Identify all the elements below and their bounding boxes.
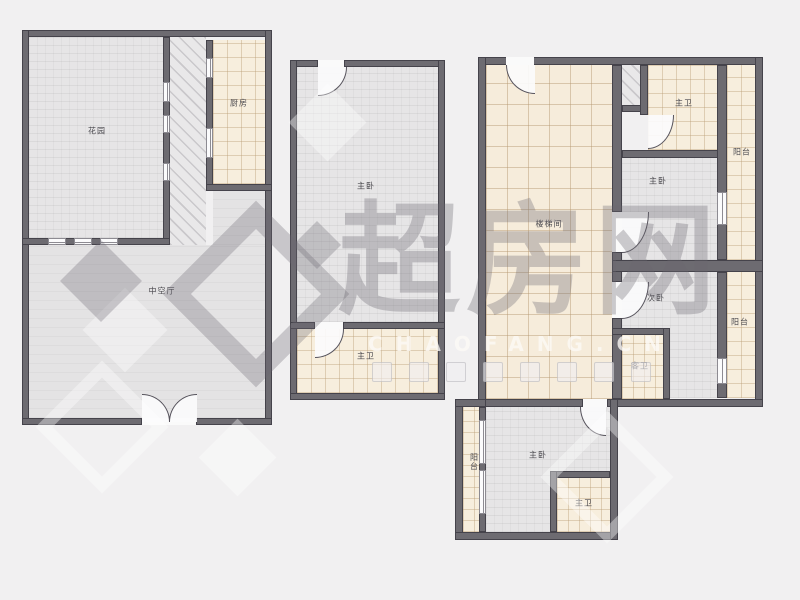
window: [717, 192, 727, 225]
wall: [478, 57, 486, 407]
wall: [622, 150, 727, 158]
room-label-balcony-mid: 阳台: [731, 317, 749, 328]
door-opening: [315, 322, 343, 329]
stairs-strip: [622, 65, 640, 107]
window: [717, 358, 727, 384]
window: [479, 470, 486, 514]
room-garden: [29, 37, 163, 238]
room-stairwell: [486, 65, 612, 399]
wall: [344, 60, 445, 67]
door-opening: [612, 282, 622, 318]
watermark-diamond-icon: [199, 419, 277, 497]
room-label-master-bedroom-mid: 主卧: [649, 176, 667, 187]
wall: [640, 65, 648, 115]
room-hall: [29, 245, 265, 418]
wall: [550, 471, 557, 532]
room-kitchen: [213, 40, 265, 184]
wall: [22, 418, 142, 425]
room-label-stairwell: 楼梯间: [536, 219, 563, 230]
room-label-balcony-bottom: 阳台: [469, 453, 480, 471]
window: [163, 115, 170, 133]
room-label-second-bedroom: 次卧: [647, 293, 665, 304]
room-label-master-bath: 主卫: [357, 351, 375, 362]
room-label-garden: 花园: [88, 126, 106, 137]
wall: [343, 322, 445, 329]
window: [163, 163, 170, 181]
window: [74, 238, 92, 245]
room-label-master-bedroom-bottom: 主卧: [529, 450, 547, 461]
wall: [206, 184, 272, 191]
stairs-strip: [170, 37, 206, 245]
window: [206, 58, 213, 78]
wall: [612, 260, 763, 272]
door-opening: [583, 399, 607, 407]
room-label-master-bath-top: 主卫: [675, 98, 693, 109]
door-opening: [506, 57, 534, 65]
wall: [438, 60, 445, 400]
wall: [717, 65, 727, 260]
window: [163, 82, 170, 102]
room-label-master-bedroom: 主卧: [357, 181, 375, 192]
window: [100, 238, 118, 245]
wall: [196, 418, 272, 425]
wall: [607, 399, 763, 407]
wall: [265, 30, 272, 425]
floorplan-image: 花园 厨房 中空厅 主卧 主卫: [0, 0, 800, 600]
wall: [22, 30, 272, 37]
window: [479, 420, 486, 464]
wall: [612, 328, 670, 335]
wall: [755, 57, 763, 407]
room-balcony-top: [727, 65, 755, 260]
room-label-guest-bath: 客卫: [631, 361, 649, 372]
wall: [290, 60, 297, 400]
room-master-bedroom: [297, 67, 438, 322]
wall: [610, 399, 618, 540]
wall: [22, 238, 170, 245]
window: [206, 128, 213, 158]
room-balcony-mid: [727, 272, 755, 398]
room-label-balcony-top: 阳台: [733, 147, 751, 158]
door-opening: [318, 60, 344, 67]
wall: [163, 37, 170, 245]
wall: [455, 532, 618, 540]
wall: [455, 399, 486, 407]
room-label-kitchen: 厨房: [230, 98, 248, 109]
room-label-master-bath-bottom: 主卫: [575, 498, 593, 509]
wall: [22, 30, 29, 425]
wall: [478, 399, 583, 407]
wall: [290, 322, 315, 329]
wall: [550, 471, 610, 478]
room-label-hall: 中空厅: [149, 286, 176, 297]
door-opening: [612, 212, 622, 252]
wall: [663, 328, 670, 399]
wall: [612, 65, 622, 212]
window: [48, 238, 66, 245]
corridor: [213, 191, 265, 245]
wall: [455, 399, 463, 540]
wall: [290, 393, 445, 400]
